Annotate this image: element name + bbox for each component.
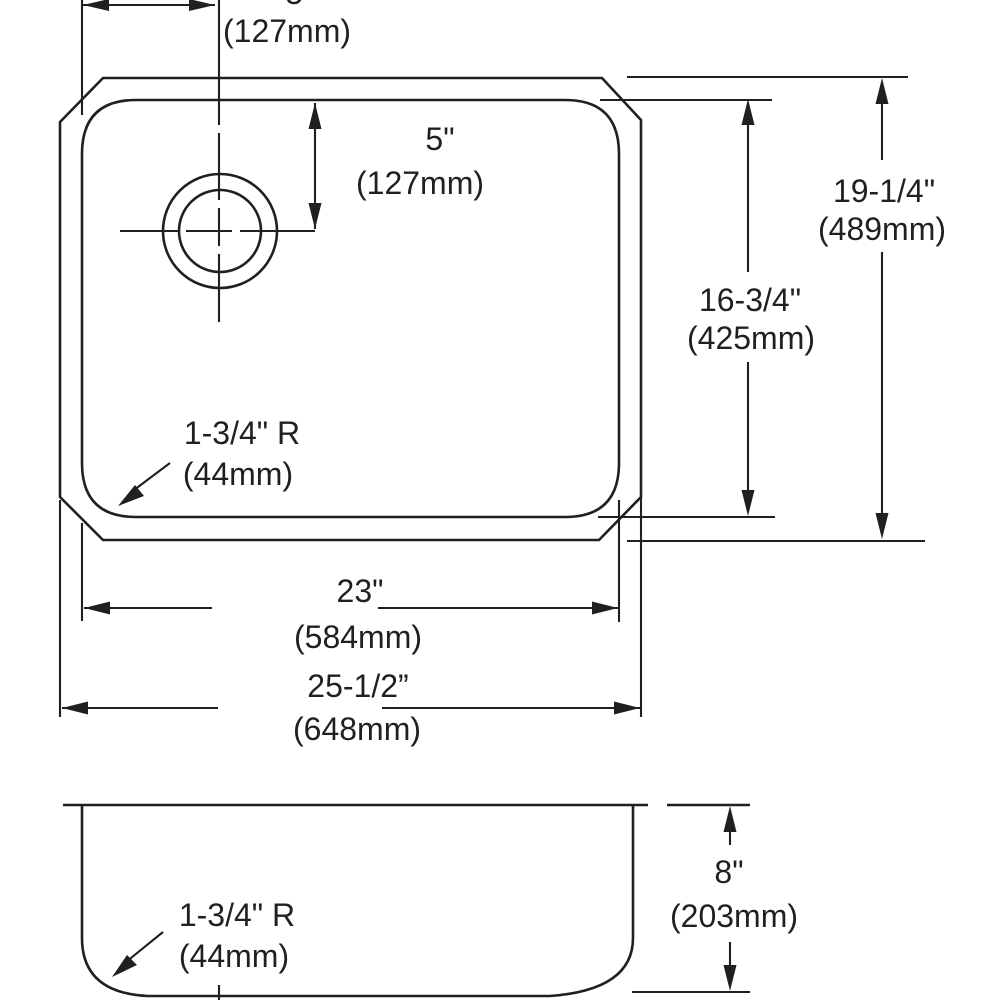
dim-bowl-height-inches-label: 8" bbox=[714, 854, 743, 890]
arrowhead-left bbox=[84, 602, 110, 615]
top-view: 5" (127mm) 5" (127mm) 19-1/4" (489mm) bbox=[60, 0, 946, 747]
dim-bowl-height-mm-label: (203mm) bbox=[670, 898, 798, 934]
arrowhead-up bbox=[724, 806, 737, 832]
radius-callout-top-mm-label: (44mm) bbox=[183, 456, 293, 492]
dim-faucet-setback: 5" (127mm) bbox=[309, 103, 485, 229]
dim-bowl-height: 8" (203mm) bbox=[632, 806, 798, 992]
dim-faucet-offset-mm-label: (127mm) bbox=[223, 13, 351, 49]
bowl-profile bbox=[82, 805, 633, 996]
arrowhead bbox=[112, 955, 137, 977]
dim-bowl-length: 16-3/4" (425mm) bbox=[598, 99, 815, 517]
arrowhead-up bbox=[309, 103, 322, 129]
radius-callout-side-mm-label: (44mm) bbox=[179, 938, 289, 974]
dim-bowl-width: 23" (584mm) bbox=[82, 500, 619, 655]
bowl-outline bbox=[82, 100, 619, 517]
radius-callout-side: 1-3/4" R (44mm) bbox=[112, 897, 295, 977]
side-view: 1-3/4" R (44mm) 8" (203mm) bbox=[63, 805, 798, 1000]
drawing-canvas: 5" (127mm) 5" (127mm) 19-1/4" (489mm) bbox=[0, 0, 1000, 1000]
dim-bowl-length-inches-label: 16-3/4" bbox=[699, 282, 801, 318]
dim-bowl-length-mm-label: (425mm) bbox=[687, 320, 815, 356]
arrowhead-left bbox=[62, 702, 88, 715]
dim-overall-width-mm-label: (648mm) bbox=[293, 711, 421, 747]
dim-overall-length-mm-label: (489mm) bbox=[818, 211, 946, 247]
arrowhead-down bbox=[309, 203, 322, 229]
dim-faucet-setback-inches-label: 5" bbox=[425, 121, 454, 157]
leader-line bbox=[126, 932, 163, 962]
arrowhead-down bbox=[876, 513, 889, 539]
arrowhead bbox=[118, 485, 144, 506]
arrowhead-down bbox=[724, 965, 737, 991]
arrowhead-left bbox=[83, 0, 109, 11]
arrowhead-down bbox=[742, 490, 755, 516]
radius-callout-top: 1-3/4" R (44mm) bbox=[118, 415, 300, 506]
arrowhead-right bbox=[592, 602, 618, 615]
radius-callout-side-label: 1-3/4" R bbox=[179, 897, 295, 933]
dim-bowl-width-mm-label: (584mm) bbox=[294, 619, 422, 655]
radius-callout-top-label: 1-3/4" R bbox=[184, 415, 300, 451]
sink-dimension-drawing: 5" (127mm) 5" (127mm) 19-1/4" (489mm) bbox=[0, 0, 1000, 1000]
arrowhead-up bbox=[742, 99, 755, 125]
dim-overall-width-inches-label: 25-1/2” bbox=[307, 668, 408, 704]
dim-faucet-offset: 5" (127mm) bbox=[82, 0, 351, 115]
arrowhead-right bbox=[614, 702, 640, 715]
dim-faucet-offset-inches-label: 5" bbox=[285, 0, 314, 11]
dim-overall-length-inches-label: 19-1/4" bbox=[833, 173, 935, 209]
dim-bowl-width-inches-label: 23" bbox=[337, 573, 384, 609]
arrowhead-up bbox=[876, 78, 889, 104]
sink-flange-outline bbox=[60, 78, 641, 540]
dim-faucet-setback-mm-label: (127mm) bbox=[356, 165, 484, 201]
arrowhead-right bbox=[189, 0, 215, 11]
